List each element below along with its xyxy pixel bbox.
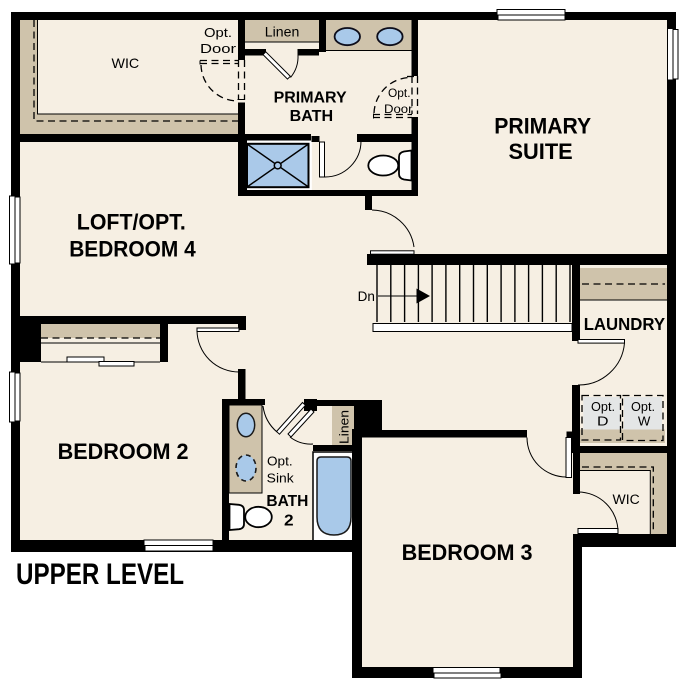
svg-text:Linen: Linen [337, 410, 352, 444]
svg-text:BEDROOM 3: BEDROOM 3 [402, 540, 533, 565]
svg-text:2: 2 [284, 513, 294, 530]
svg-text:Opt.: Opt. [267, 454, 293, 469]
svg-text:PRIMARY: PRIMARY [274, 89, 347, 106]
svg-text:Sink: Sink [267, 471, 295, 486]
svg-text:PRIMARY: PRIMARY [494, 114, 591, 139]
svg-text:W: W [638, 414, 651, 428]
svg-text:Dn: Dn [358, 288, 375, 304]
svg-text:Door: Door [200, 41, 237, 56]
svg-text:WIC: WIC [613, 492, 640, 507]
svg-text:BEDROOM 2: BEDROOM 2 [58, 439, 189, 464]
svg-text:Opt.: Opt. [631, 400, 655, 414]
svg-text:Opt.: Opt. [388, 88, 411, 100]
svg-text:Linen: Linen [265, 25, 300, 40]
svg-text:D: D [597, 414, 609, 428]
svg-text:LOFT/OPT.: LOFT/OPT. [77, 210, 186, 235]
svg-text:BEDROOM 4: BEDROOM 4 [69, 236, 196, 261]
svg-text:LAUNDRY: LAUNDRY [584, 314, 666, 334]
svg-text:WIC: WIC [112, 55, 140, 71]
svg-text:Opt.: Opt. [591, 400, 615, 414]
svg-text:BATH: BATH [290, 108, 334, 125]
svg-text:SUITE: SUITE [509, 139, 573, 164]
svg-text:Opt.: Opt. [204, 25, 232, 40]
svg-text:Door: Door [384, 104, 413, 116]
svg-text:UPPER LEVEL: UPPER LEVEL [16, 558, 184, 591]
svg-text:BATH: BATH [266, 493, 308, 510]
